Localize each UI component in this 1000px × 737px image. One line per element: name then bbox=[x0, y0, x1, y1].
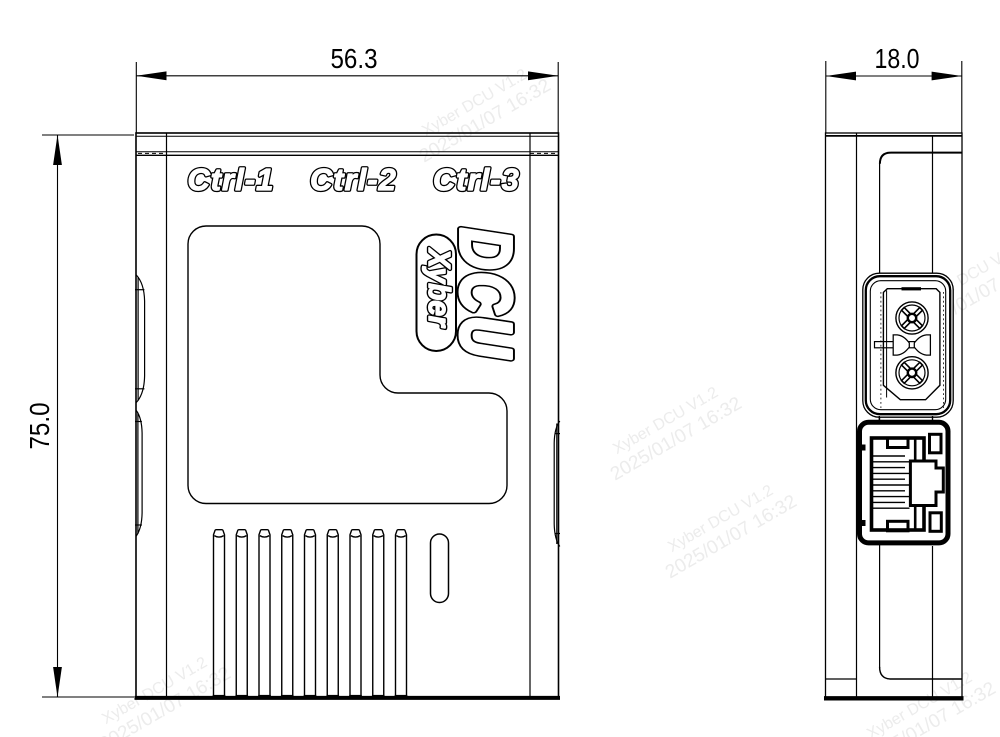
svg-text:Xyber: Xyber bbox=[422, 247, 455, 328]
svg-text:Ctrl-3: Ctrl-3 bbox=[433, 163, 520, 197]
svg-text:Ctrl-1: Ctrl-1 bbox=[188, 163, 275, 197]
svg-text:DCU: DCU bbox=[445, 228, 526, 360]
svg-text:56.3: 56.3 bbox=[331, 43, 378, 74]
svg-text:18.0: 18.0 bbox=[875, 43, 920, 74]
svg-text:Ctrl-2: Ctrl-2 bbox=[310, 163, 397, 197]
svg-text:75.0: 75.0 bbox=[24, 403, 55, 450]
